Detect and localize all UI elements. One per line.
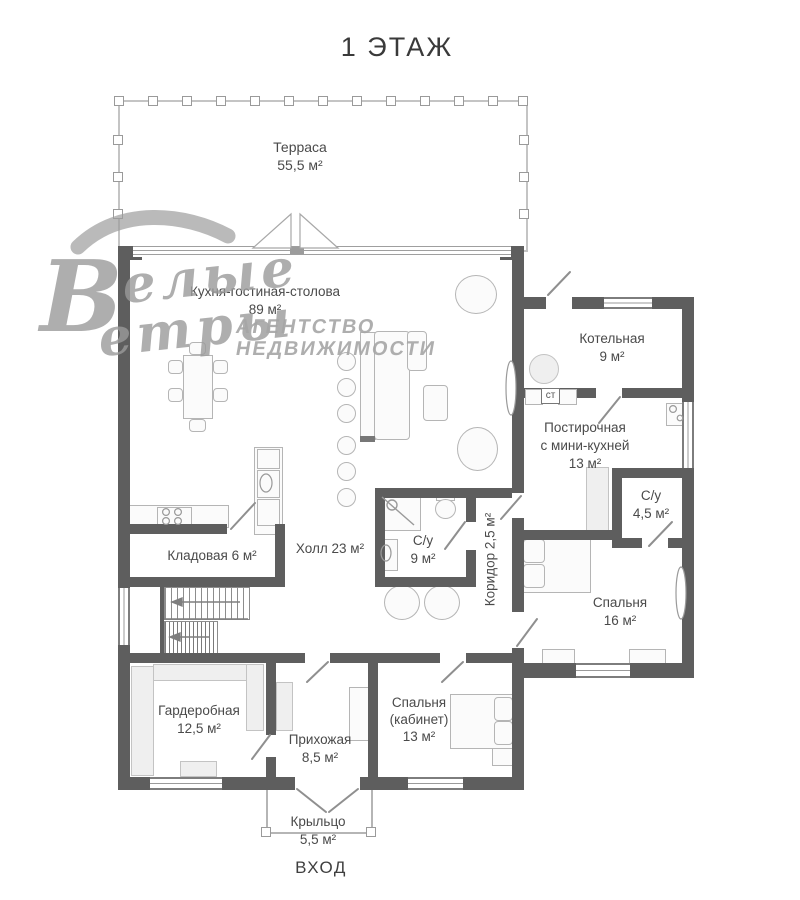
- wall: [572, 297, 604, 309]
- room-area: 4,5 м²: [633, 505, 669, 523]
- terrace-post: [250, 96, 260, 106]
- toilet-bowl: [435, 499, 456, 519]
- room-label-wc-big: С/у 9 м²: [410, 532, 435, 568]
- stairs-upper-flight: [164, 587, 250, 620]
- room-name: Коридор: [483, 553, 498, 606]
- room-name: Гардеробная: [158, 702, 240, 720]
- porch-post: [366, 827, 376, 837]
- kitchen-appliance: [257, 499, 280, 526]
- room-label-bedroom-office: Спальня (кабинет) 13 м²: [390, 694, 449, 745]
- watermark-big-letter: В: [40, 240, 123, 355]
- room-area: 9 м²: [410, 550, 435, 568]
- room-area: 23 м²: [332, 541, 365, 556]
- boiler: [529, 354, 559, 384]
- wall: [368, 663, 378, 777]
- dining-table: [183, 355, 213, 419]
- terrace-post: [318, 96, 328, 106]
- bar-stool: [337, 488, 356, 507]
- shower: [379, 494, 421, 531]
- room-label-storage: Кладовая 6 м²: [167, 547, 256, 565]
- bar-stool: [337, 462, 356, 481]
- wall: [682, 309, 694, 402]
- terrace-post: [420, 96, 430, 106]
- room-label-bedroom-16: Спальня 16 м²: [593, 594, 647, 630]
- sofa: [374, 331, 410, 440]
- pillow: [523, 539, 545, 563]
- window: [682, 402, 694, 468]
- terrace-post: [386, 96, 396, 106]
- nightstand: [542, 649, 575, 664]
- window: [604, 297, 652, 309]
- armchair: [455, 275, 497, 314]
- terrace-post: [148, 96, 158, 106]
- room-name-2: (кабинет): [390, 711, 449, 728]
- room-label-wc-small: С/у 4,5 м²: [633, 487, 669, 523]
- terrace-outline: [118, 100, 528, 252]
- bench: [492, 748, 513, 766]
- pillow: [494, 721, 513, 745]
- room-area: 13 м²: [390, 728, 449, 745]
- room-label-boiler: Котельная 9 м²: [579, 330, 644, 366]
- wall: [222, 777, 295, 790]
- terrace-post: [519, 209, 529, 219]
- room-area: 55,5 м²: [273, 156, 327, 174]
- room-area: 12,5 м²: [158, 720, 240, 738]
- porch-post: [261, 827, 271, 837]
- wardrobe-closet: [131, 666, 154, 776]
- room-label-laundry: Постирочная с мини-кухней 13 м²: [541, 419, 630, 473]
- bar-counter-end: [360, 436, 375, 442]
- room-label-terrace: Терраса 55,5 м²: [273, 138, 327, 174]
- wall: [512, 297, 546, 309]
- office-couch: [349, 687, 369, 741]
- entry-closet: [276, 682, 293, 731]
- room-name: Терраса: [273, 138, 327, 156]
- room-area: 8,5 м²: [289, 749, 352, 767]
- room-area: 9 м²: [579, 348, 644, 366]
- wall: [118, 577, 285, 587]
- ottoman: [423, 385, 448, 421]
- terrace-post: [488, 96, 498, 106]
- wall: [130, 653, 305, 663]
- wall: [118, 645, 130, 790]
- room-area: 6 м²: [232, 548, 257, 563]
- wardrobe-closet: [153, 664, 249, 681]
- kitchen-sink: [257, 470, 280, 498]
- room-area: 2,5 м²: [483, 513, 498, 549]
- room-name: Крыльцо: [290, 813, 345, 831]
- page-title: 1 ЭТАЖ: [341, 32, 453, 63]
- bar-stool: [337, 436, 356, 455]
- room-label-kitchen: Кухня-гостиная-столова 89 м²: [190, 283, 340, 319]
- wall: [652, 297, 694, 309]
- stairs-lower-flight: [164, 621, 218, 655]
- terrace-post: [114, 96, 124, 106]
- wall: [622, 388, 682, 398]
- room-name: Кухня-гостиная-столова: [190, 283, 340, 301]
- room-name: Котельная: [579, 330, 644, 348]
- room-area: 16 м²: [593, 612, 647, 630]
- room-area: 13 м²: [541, 455, 630, 473]
- terrace-post: [113, 209, 123, 219]
- wardrobe-closet: [246, 664, 264, 731]
- terrace-post: [216, 96, 226, 106]
- wall-stair: [160, 587, 164, 653]
- pillow: [523, 564, 545, 588]
- terrace-post: [182, 96, 192, 106]
- terrace-post: [113, 172, 123, 182]
- bar-stool: [337, 404, 356, 423]
- wardrobe-bench: [180, 761, 217, 777]
- wall: [330, 653, 440, 663]
- wall: [512, 250, 524, 493]
- wall: [612, 468, 622, 548]
- wall: [466, 550, 476, 587]
- wall: [476, 488, 512, 498]
- terrace-post: [519, 135, 529, 145]
- wall: [512, 518, 524, 612]
- room-area: 5,5 м²: [290, 831, 345, 849]
- wall: [682, 468, 694, 678]
- terrace-post: [519, 172, 529, 182]
- sliding-door: [133, 246, 511, 257]
- room-label-porch: Крыльцо 5,5 м²: [290, 813, 345, 849]
- wall: [118, 777, 150, 790]
- room-name: Спальня: [593, 594, 647, 612]
- dining-chair: [168, 388, 183, 402]
- wall: [512, 663, 524, 788]
- sofa-module: [407, 331, 427, 371]
- wall: [612, 538, 642, 548]
- wall: [375, 488, 385, 587]
- window: [118, 588, 130, 645]
- room-area: 89 м²: [190, 301, 340, 319]
- terrace-post: [352, 96, 362, 106]
- wall: [668, 538, 694, 548]
- dining-chair: [189, 342, 206, 355]
- terrace-post: [113, 135, 123, 145]
- terrace-post: [454, 96, 464, 106]
- room-name: С/у: [410, 532, 435, 550]
- wall: [463, 777, 524, 790]
- room-name: Кладовая: [167, 548, 227, 563]
- wall: [375, 488, 476, 498]
- laundry-closet: [586, 467, 609, 536]
- washing-machine-label-box: ст: [541, 388, 560, 404]
- dining-chair: [189, 419, 206, 432]
- wall: [630, 663, 694, 678]
- wall: [466, 653, 524, 663]
- wall: [360, 777, 408, 790]
- wall: [266, 757, 276, 779]
- dining-chair: [168, 360, 183, 374]
- hall-chair: [424, 585, 460, 620]
- nightstand: [629, 649, 666, 664]
- room-label-entry-hall: Прихожая 8,5 м²: [289, 731, 352, 767]
- armchair: [457, 427, 498, 471]
- room-name: С/у: [633, 487, 669, 505]
- room-name-2: с мини-кухней: [541, 437, 630, 455]
- hall-chair: [384, 585, 420, 620]
- pillow: [494, 697, 513, 721]
- wall: [375, 577, 476, 587]
- wall: [512, 530, 616, 540]
- dining-chair: [213, 360, 228, 374]
- washing-machine-label: ст: [546, 390, 556, 401]
- window: [408, 777, 463, 790]
- bar-stool: [337, 378, 356, 397]
- bar-stool: [337, 352, 356, 371]
- wall: [118, 246, 130, 588]
- room-label-corridor: Коридор 2,5 м²: [483, 500, 498, 620]
- room-label-hall: Холл 23 м²: [296, 540, 364, 558]
- room-name: Холл: [296, 541, 328, 556]
- sliding-door-tick: [290, 247, 304, 254]
- room-label-wardrobe: Гардеробная 12,5 м²: [158, 702, 240, 738]
- room-name: Спальня: [390, 694, 449, 711]
- wall: [524, 663, 576, 678]
- dining-chair: [213, 388, 228, 402]
- wall: [466, 488, 476, 522]
- room-name: Прихожая: [289, 731, 352, 749]
- wall: [127, 524, 227, 534]
- entrance-label: ВХОД: [295, 858, 347, 878]
- washing-machine: [558, 389, 577, 405]
- terrace-post: [518, 96, 528, 106]
- window: [150, 777, 222, 790]
- terrace-post: [284, 96, 294, 106]
- kitchen-appliance: [257, 449, 280, 469]
- room-name: Постирочная: [541, 419, 630, 437]
- floor-plan: 1 ЭТАЖ: [0, 0, 800, 900]
- window: [576, 663, 630, 678]
- watermark-agency-line1: АГЕНТСТВО: [234, 316, 378, 339]
- wall: [266, 663, 276, 735]
